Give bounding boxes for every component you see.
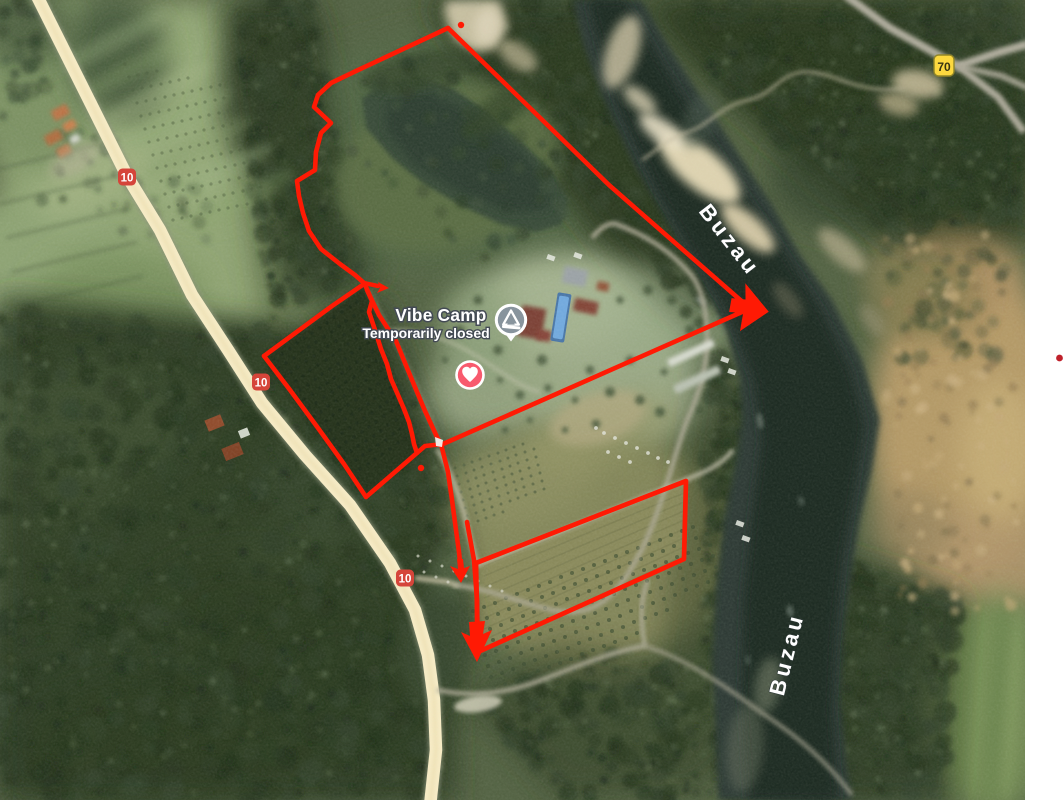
svg-text:70: 70 (937, 60, 951, 74)
svg-text:10: 10 (255, 377, 268, 389)
svg-text:10: 10 (399, 573, 412, 585)
svg-text:10: 10 (121, 172, 134, 184)
svg-text:Temporarily closed: Temporarily closed (362, 325, 489, 341)
svg-text:Vibe Camp: Vibe Camp (395, 305, 486, 325)
